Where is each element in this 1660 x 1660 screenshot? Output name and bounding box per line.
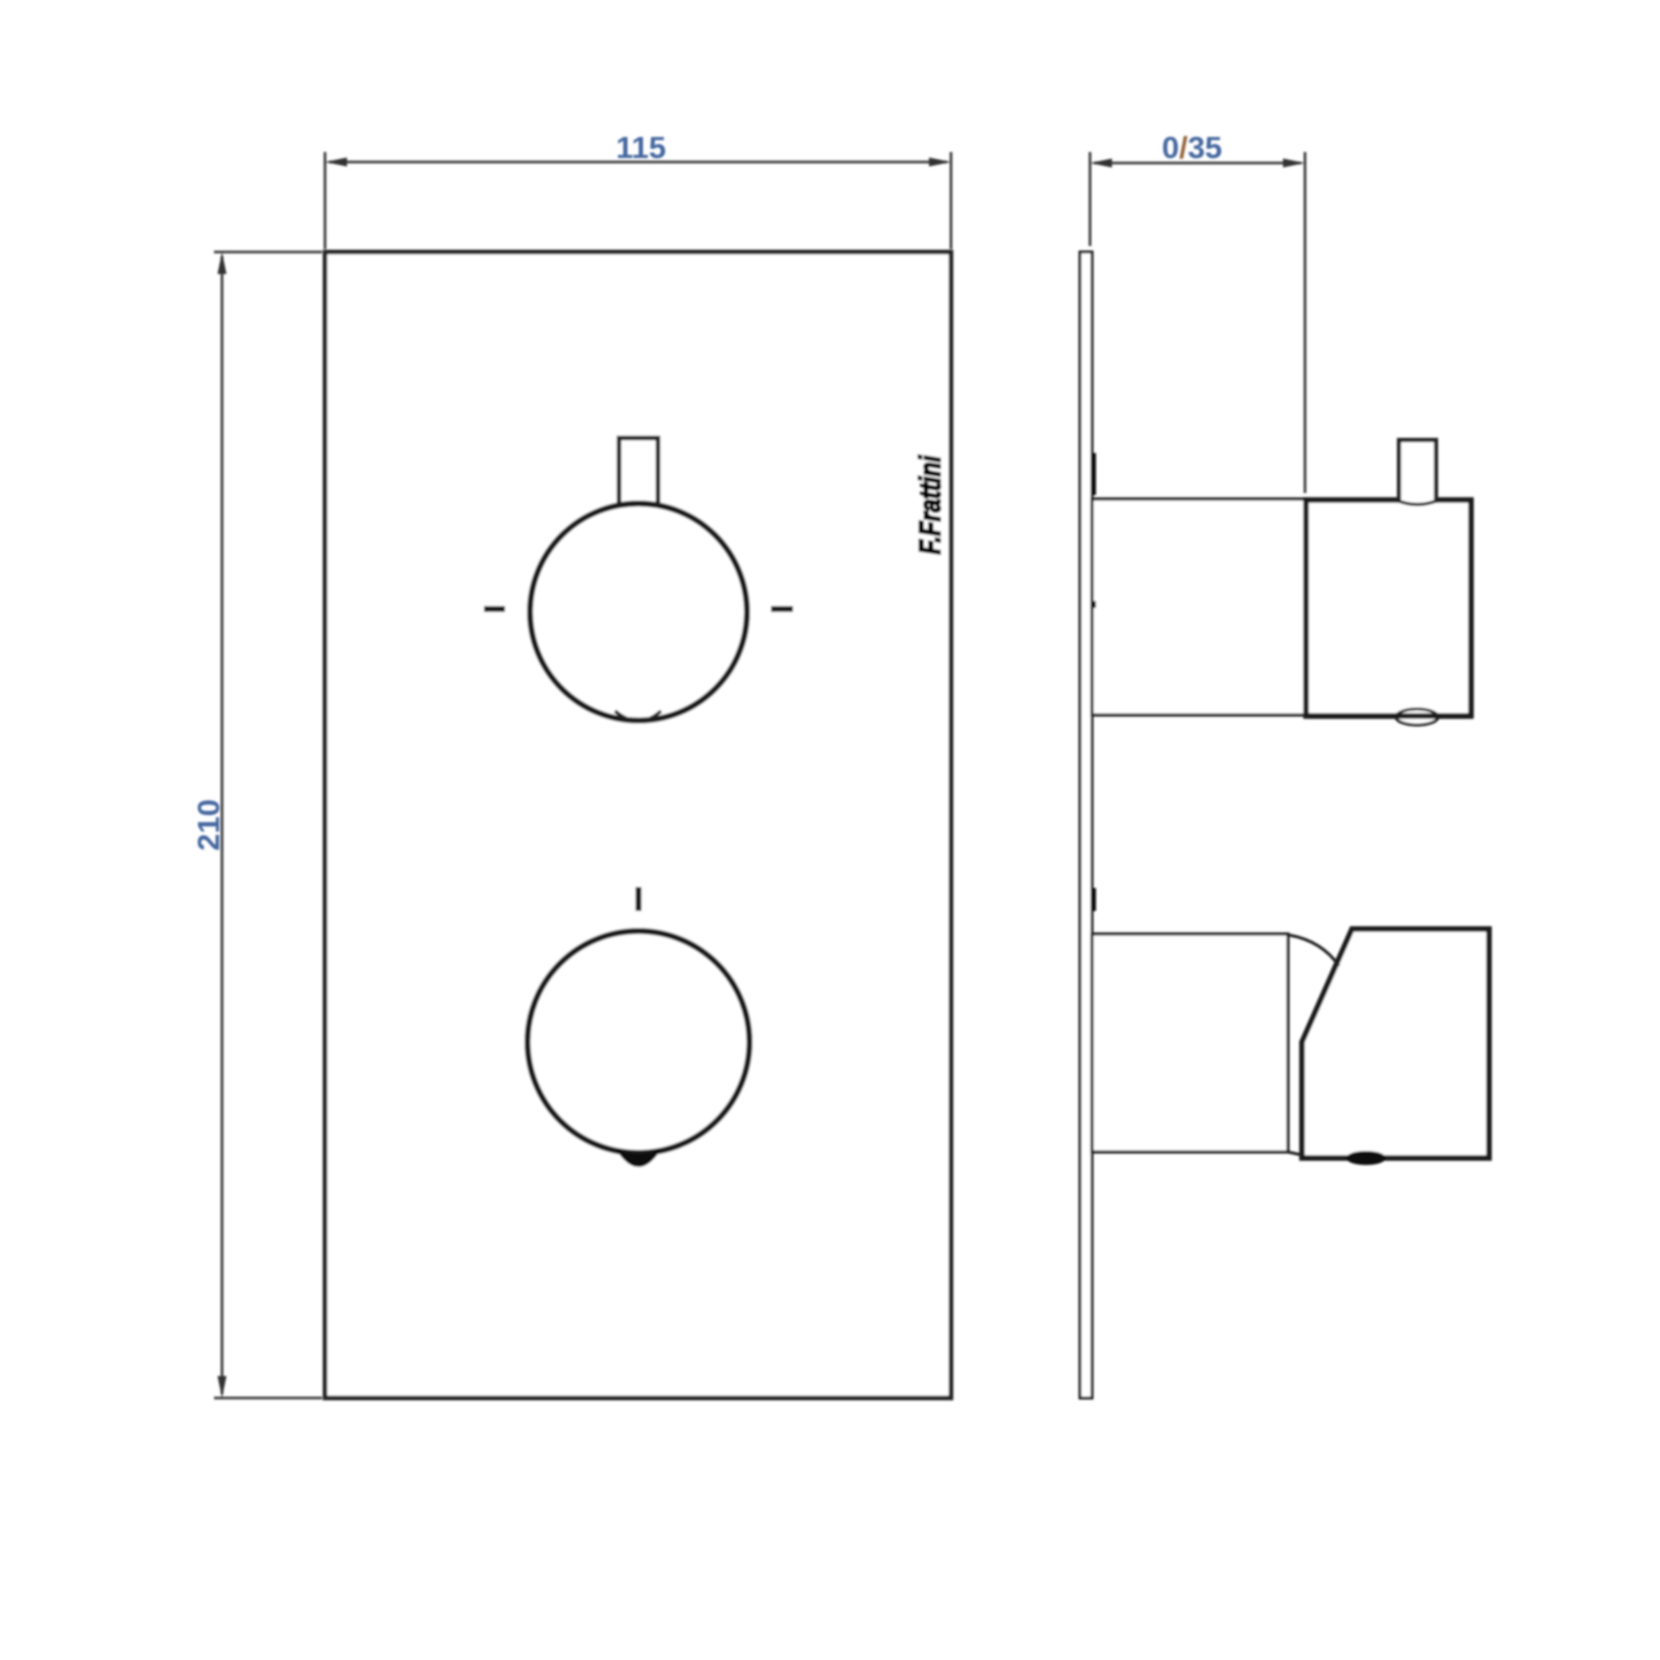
svg-text:0/35: 0/35 <box>1162 130 1222 165</box>
svg-text:F.Frattini: F.Frattini <box>914 455 947 555</box>
svg-text:210: 210 <box>191 799 226 851</box>
svg-text:115: 115 <box>616 130 666 165</box>
